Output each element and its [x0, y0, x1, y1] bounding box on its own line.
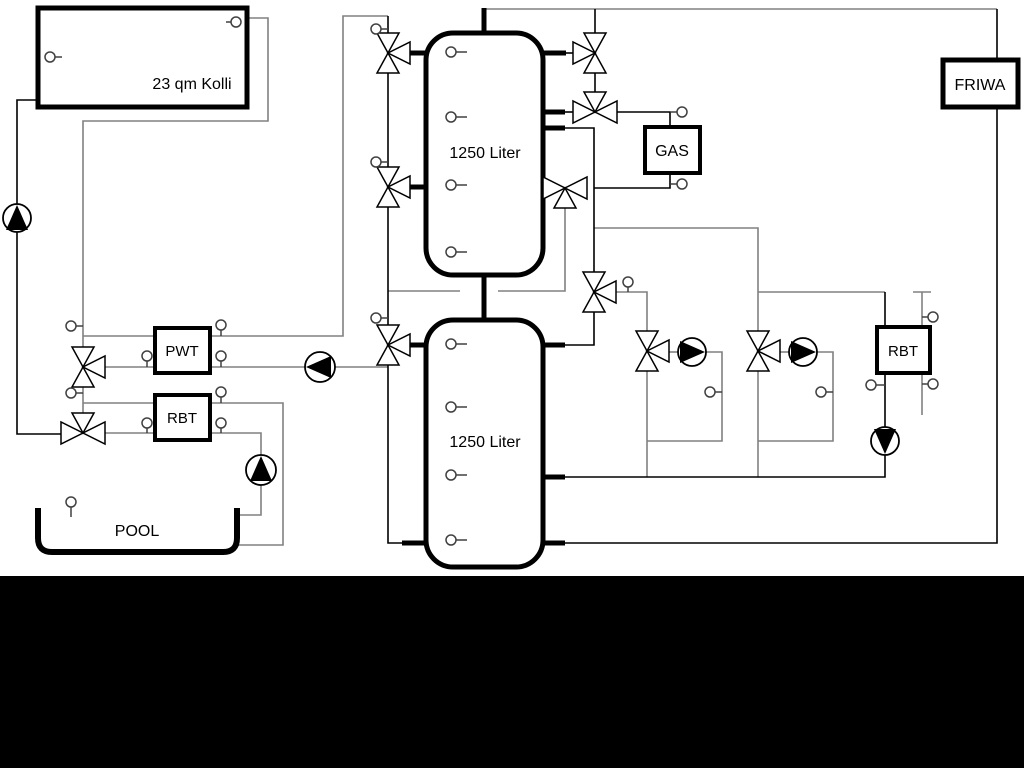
pipe-segment	[617, 112, 670, 127]
sensor-icon	[66, 321, 83, 331]
rbt-right-pump-icon	[871, 427, 899, 455]
circuit2-pump-icon	[789, 338, 817, 366]
sensor-icon	[216, 320, 226, 336]
gas-boiler-label: GAS	[655, 143, 689, 160]
sensor-icon	[922, 312, 938, 322]
pwt-heat-exchanger-label: PWT	[165, 343, 198, 360]
valve-gas-supply-icon	[573, 92, 617, 123]
valve-heating-circuit1-icon	[636, 331, 669, 371]
valve-solar-tank1-mid-icon	[377, 167, 410, 207]
sensor-icon	[866, 380, 885, 390]
sensor-icon	[216, 351, 226, 367]
valve-heating-circuit2-icon	[747, 331, 780, 371]
sensor-icon	[142, 351, 152, 367]
sensor-icon	[142, 418, 152, 433]
sensor-icon	[66, 497, 76, 517]
buffer-tank-top: 1250 Liter	[426, 33, 543, 275]
rbt-right-heat-exchanger: RBT	[877, 327, 930, 373]
rbt-right-label: RBT	[888, 343, 918, 360]
pipe-segment	[565, 9, 997, 543]
valve-solar-tank1-top-icon	[377, 33, 410, 73]
sensor-icon	[371, 157, 388, 167]
buffer-tank-bottom-label: 1250 Liter	[449, 434, 521, 451]
friwa-station-label: FRIWA	[955, 77, 1006, 94]
sensor-icon	[816, 387, 833, 397]
buffer-tank-bottom: 1250 Liter	[426, 320, 543, 567]
valve-tank1-right-mid-icon	[543, 177, 587, 208]
solar-pump-icon	[3, 204, 31, 232]
sensor-icon	[671, 107, 687, 117]
sensor-icon	[922, 379, 938, 389]
pipe-segment	[388, 365, 402, 543]
sensor-icon	[216, 418, 226, 433]
circuit1-pump-icon	[678, 338, 706, 366]
sensor-icon	[66, 388, 83, 398]
friwa-station: FRIWA	[943, 60, 1018, 107]
valve-pool-supply-icon	[61, 413, 105, 444]
valve-tank1-right-top-icon	[573, 33, 606, 73]
pipe-segment	[594, 173, 670, 188]
hydraulic-schematic: 23 qm Kolli 1250 Liter 1250 Liter GAS FR…	[0, 0, 1024, 768]
pwt-heat-exchanger: PWT	[155, 328, 210, 373]
pipe-segment	[594, 228, 758, 331]
rbt-left-label: RBT	[167, 410, 197, 427]
pipe-segment	[565, 373, 885, 477]
rbt-left-heat-exchanger: RBT	[155, 395, 210, 440]
pool-label: POOL	[115, 523, 160, 540]
valve-pwt-supply-icon	[72, 347, 105, 387]
valve-solar-tank2-top-icon	[377, 325, 410, 365]
sensor-icon	[705, 387, 722, 397]
pipe-segment	[17, 100, 61, 434]
pwt-pump-icon	[305, 352, 335, 382]
sensor-icon	[216, 387, 226, 403]
pipe-segment	[565, 312, 594, 345]
sensor-icon	[671, 179, 687, 189]
pipe-segment	[616, 292, 647, 331]
sensor-icon	[371, 313, 388, 323]
valve-consumer-supply-icon	[583, 272, 616, 312]
solar-collector-label: 23 qm Kolli	[152, 76, 231, 93]
bottom-black-bar	[0, 576, 1024, 768]
buffer-tank-top-label: 1250 Liter	[449, 145, 521, 162]
pool-basin: POOL	[38, 508, 237, 552]
pool-pump-icon	[246, 455, 276, 485]
schematic-canvas: 23 qm Kolli 1250 Liter 1250 Liter GAS FR…	[0, 0, 1024, 768]
gas-boiler: GAS	[645, 127, 700, 173]
solar-collector: 23 qm Kolli	[38, 8, 247, 107]
sensor-icon	[623, 277, 633, 292]
